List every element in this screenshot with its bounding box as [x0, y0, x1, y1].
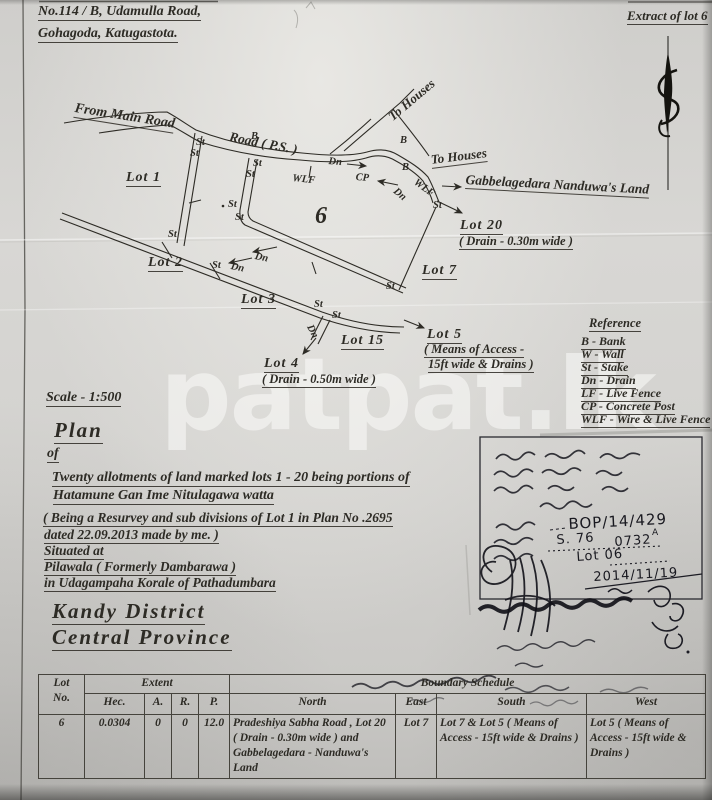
lower-handwriting-rows	[497, 640, 595, 667]
stake-label: St	[190, 148, 199, 159]
plan-line-2: Hatamune Gan Ime Nitulagawa watta	[53, 488, 274, 505]
stake-label: St	[253, 158, 262, 169]
reference-title: Reference	[589, 316, 641, 332]
plan-line-4: dated 22.09.2013 made by me. )	[44, 527, 219, 544]
drain-label: Dn	[328, 156, 342, 168]
stake-label: St	[168, 229, 177, 240]
table-header-no: No.	[42, 691, 81, 706]
extract-of-lot-label: Extract of lot 6	[627, 8, 708, 25]
stake-label: St	[433, 200, 442, 211]
plan-line-1: Twenty allotments of land marked lots 1 …	[52, 470, 410, 487]
table-header-p: P.	[199, 694, 230, 715]
stake-label: St	[386, 281, 395, 292]
table-header-lot-no: Lot No.	[39, 675, 85, 715]
cell-a: 0	[145, 715, 172, 779]
stake-label: St	[196, 137, 205, 148]
scale-label: Scale - 1:500	[46, 390, 121, 407]
concrete-post-label: CP	[355, 172, 369, 184]
table-header-east: East	[396, 694, 437, 715]
cell-south: Lot 7 & Lot 5 ( Means of Access - 15ft w…	[437, 715, 587, 779]
cell-hec: 0.0304	[85, 715, 145, 779]
right-handwriting-curls	[648, 586, 690, 653]
stamp-file-sup: A	[652, 528, 659, 538]
bank-label: B	[400, 135, 407, 146]
stake-label: St	[246, 169, 255, 180]
dn-arrow-road-left	[378, 181, 398, 185]
cell-p: 12.0	[199, 715, 230, 779]
boundary-schedule-table: Lot No. Extent Boundary Schedule Hec. A.…	[38, 674, 706, 779]
table-header-a: A.	[145, 694, 172, 715]
table-header-boundary: Boundary Schedule	[230, 675, 706, 694]
pencil-mark	[294, 2, 315, 28]
lot6-number: 6	[315, 203, 327, 230]
plan-title: Plan	[54, 418, 103, 444]
wire-live-fence-label: WLF	[292, 173, 316, 186]
binding-thread-ornament	[659, 36, 678, 190]
heavy-scribble	[479, 598, 632, 612]
lot4-label: Lot 4	[264, 356, 299, 373]
plan-line-5: Situated at	[44, 543, 104, 560]
lot1-label: Lot 1	[126, 170, 161, 187]
table-header-north: North	[230, 694, 396, 715]
reference-item-wire-live-fence: WLF - Wire & Live Fence	[581, 412, 710, 428]
cell-lot-no: 6	[39, 715, 85, 779]
dn-arrow-road-right	[347, 164, 366, 166]
scanned-survey-plan-page: patpat.lk	[0, 0, 712, 800]
stake-label: St	[212, 260, 221, 271]
stamp-file-prefix: S. 76	[556, 530, 595, 548]
lot2-label: Lot 2	[148, 255, 183, 272]
small-scribble	[608, 589, 632, 594]
address-line-1: No.114 / B, Udamulla Road,	[38, 4, 201, 21]
lot5-access-note-2: 15ft wide & Drains )	[428, 357, 534, 373]
gabbelagedara-arrow	[442, 186, 461, 187]
cell-west: Lot 5 ( Means of Access - 15ft wide & Dr…	[587, 715, 706, 779]
province-label: Central Province	[52, 625, 232, 651]
lot20-label: Lot 20	[460, 218, 503, 235]
bank-label: B	[402, 162, 409, 173]
access-road-tick-3	[312, 262, 316, 274]
lot7-label: Lot 7	[422, 263, 457, 280]
address-line-2: Gohagoda, Katugastota.	[38, 26, 178, 43]
drain2-line-b	[248, 160, 406, 288]
right-edge-shadow	[702, 0, 712, 800]
cell-north: Pradeshiya Sabha Road , Lot 20 ( Drain -…	[230, 715, 396, 779]
lot3-label: Lot 3	[241, 292, 276, 309]
top-edge-shadow	[0, 0, 712, 5]
road-top-line	[64, 112, 439, 202]
left-margin-line	[21, 0, 25, 800]
district-label: Kandy District	[52, 599, 205, 625]
table-header-hec: Hec.	[85, 694, 145, 715]
bank-label: B	[251, 131, 258, 142]
plan-line-3: ( Being a Resurvey and sub divisions of …	[43, 510, 393, 527]
cell-r: 0	[172, 715, 199, 779]
stake-label: St	[235, 212, 244, 223]
table-header-lot: Lot	[42, 676, 81, 691]
stake-label: St	[228, 199, 237, 210]
lot5-arrow	[404, 320, 424, 328]
table-header-extent: Extent	[85, 675, 230, 694]
table-header-south: South	[437, 694, 587, 715]
stake-label: St	[332, 310, 341, 321]
stake-label: St	[314, 299, 323, 310]
plan-line-6: Pilawala ( Formerly Dambarawa )	[44, 559, 236, 576]
table-header-west: West	[587, 694, 706, 715]
table-header-r: R.	[172, 694, 199, 715]
to-houses-branch-1b	[330, 119, 371, 154]
lot5-access-note-1: ( Means of Access -	[424, 342, 524, 358]
cell-east: Lot 7	[396, 715, 437, 779]
lot15-label: Lot 15	[341, 333, 384, 350]
survey-linework	[60, 89, 462, 354]
table-row: 6 0.0304 0 0 12.0 Pradeshiya Sabha Road …	[39, 715, 706, 779]
plan-of: of	[47, 446, 59, 463]
lot4-arrow	[303, 338, 316, 354]
lot4-drain-note: ( Drain - 0.50m wide )	[262, 372, 376, 388]
plan-line-7: in Udagampaha Korale of Pathadumbara	[44, 575, 276, 592]
bottom-edge-shadow	[0, 784, 712, 800]
lot20-drain-note: ( Drain - 0.30m wide )	[459, 234, 573, 250]
